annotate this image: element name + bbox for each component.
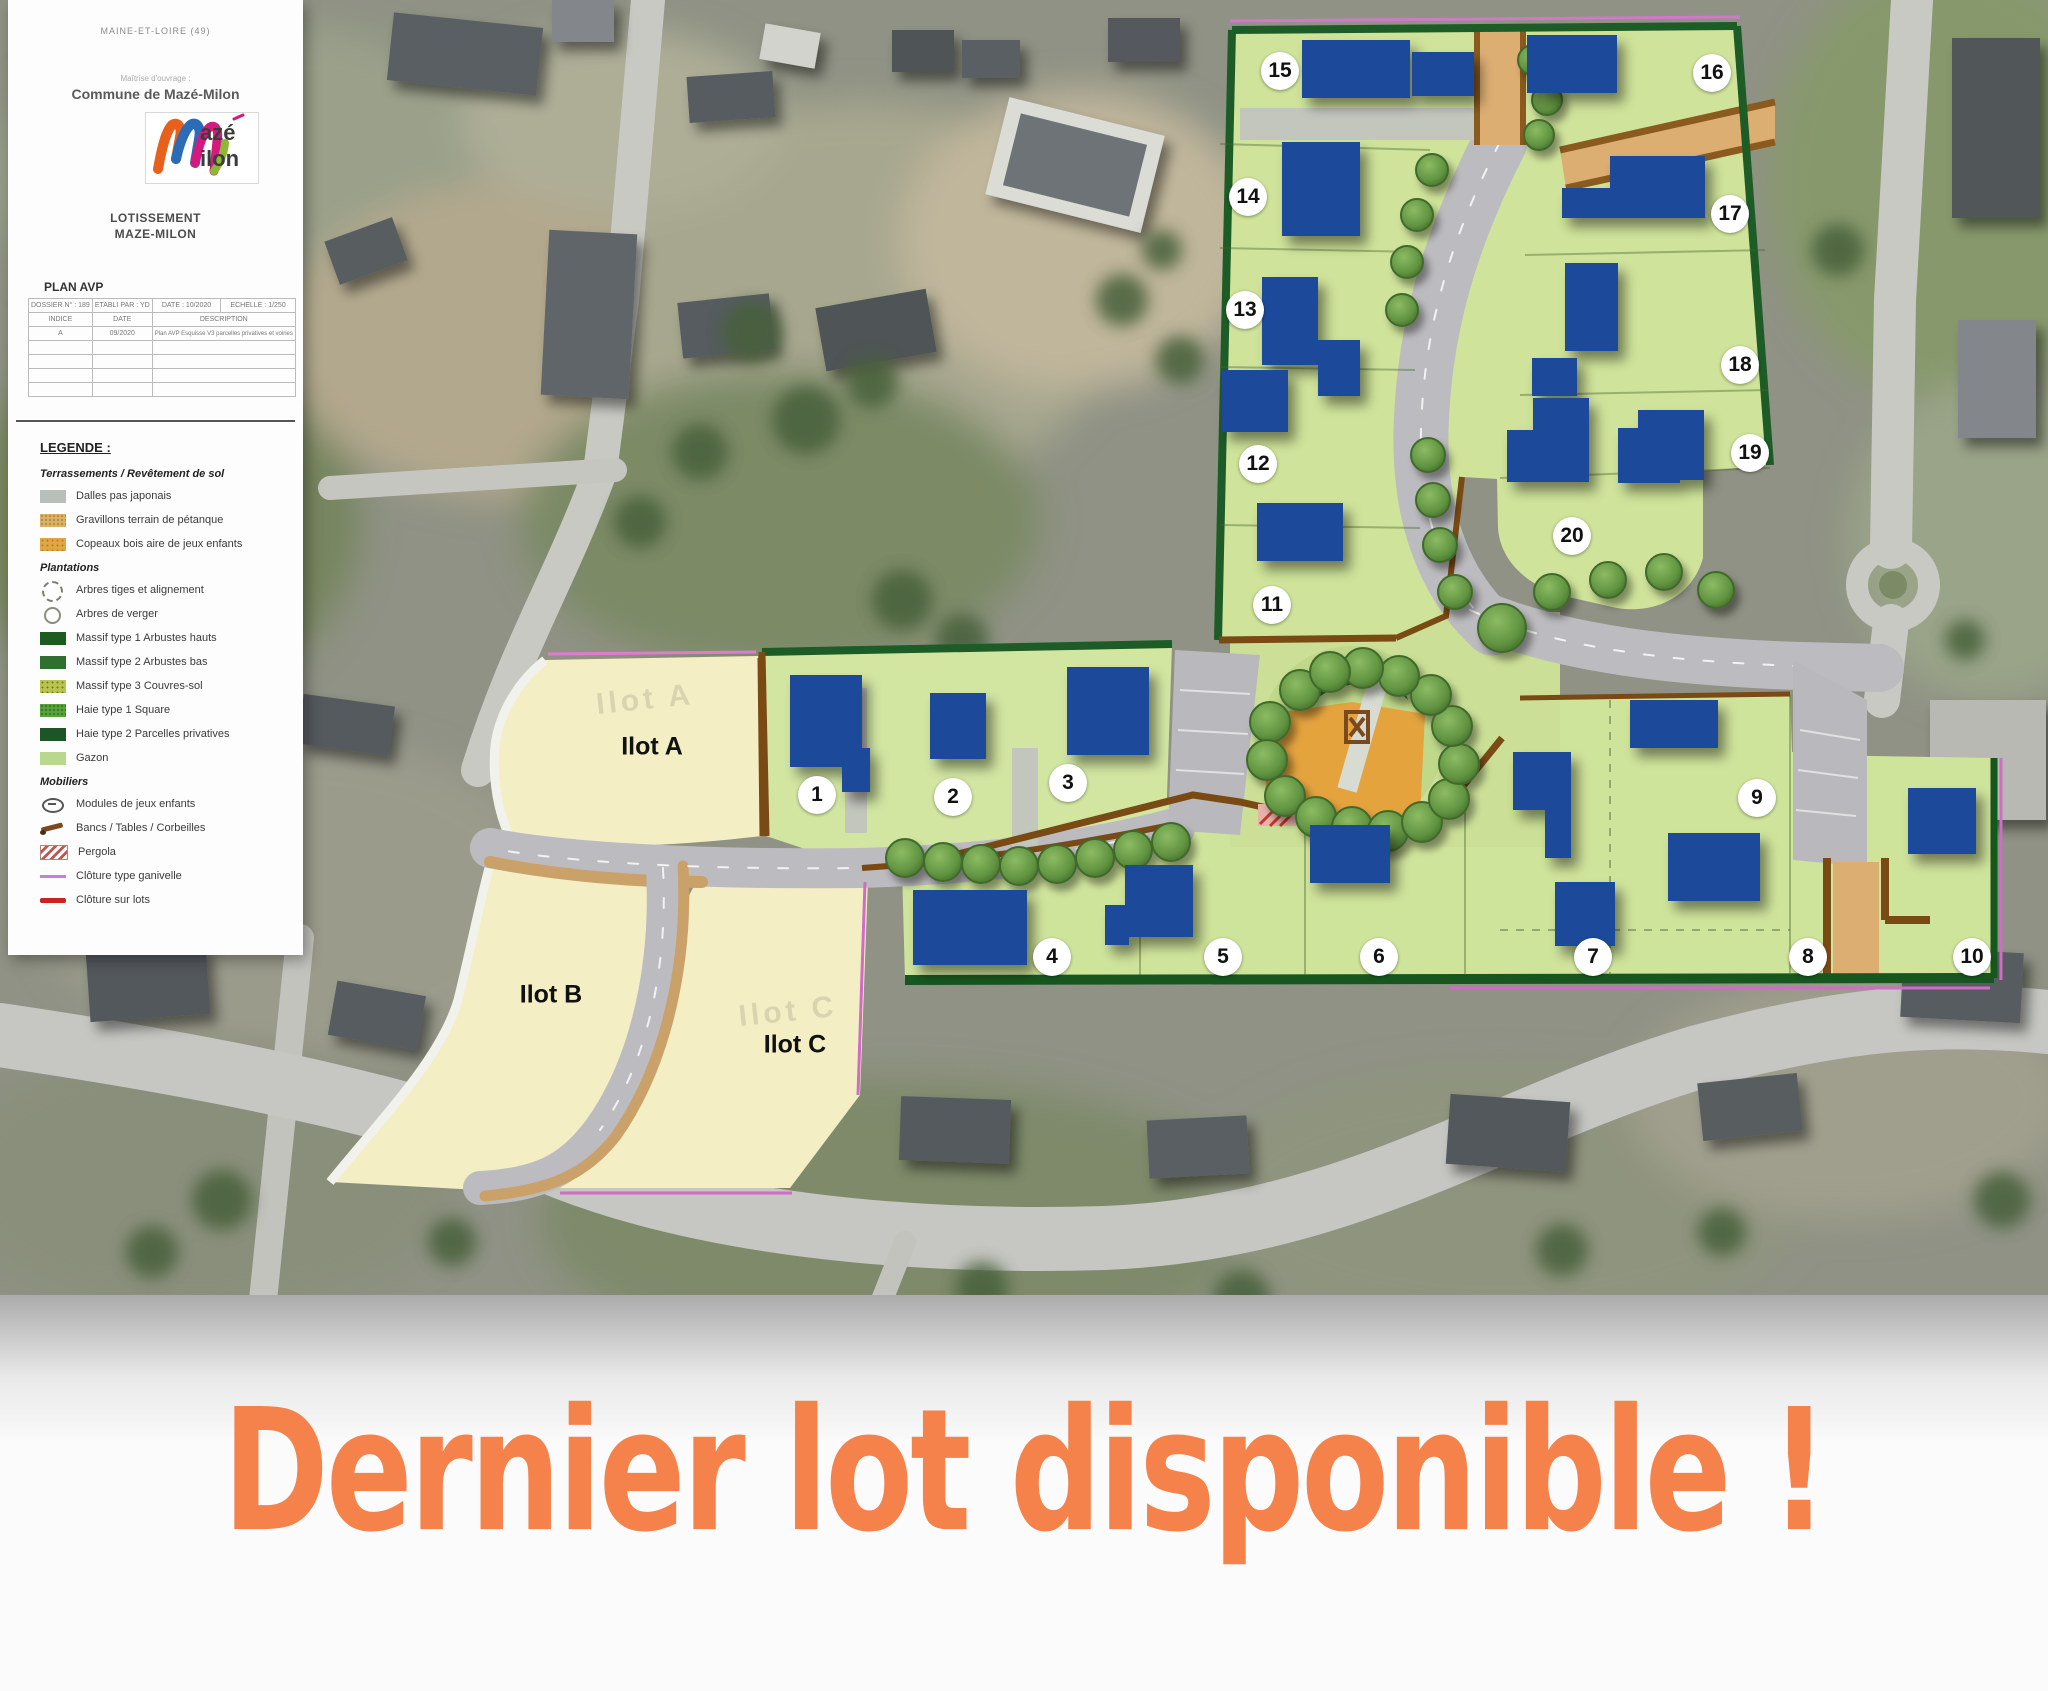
ilot-label-a: Ilot A xyxy=(621,733,683,762)
legend-item: Clôture type ganivelle xyxy=(40,864,290,888)
lot-marker-9: 9 xyxy=(1738,779,1776,817)
massif3-swatch-icon xyxy=(40,680,66,693)
client-caption: Maîtrise d'ouvrage : xyxy=(8,74,303,83)
legend-item-label: Arbres tiges et alignement xyxy=(76,584,204,596)
plan-type-label: PLAN AVP xyxy=(44,280,103,294)
legend-item-label: Modules de jeux enfants xyxy=(76,798,195,810)
ganivelle-swatch-icon xyxy=(40,870,66,883)
lot-marker-20: 20 xyxy=(1553,517,1591,555)
legend-item-label: Bancs / Tables / Corbeilles xyxy=(76,822,205,834)
lot-marker-3: 3 xyxy=(1049,764,1087,802)
ilot-label-b: Ilot B xyxy=(520,981,583,1010)
lot-marker-4: 4 xyxy=(1033,938,1071,976)
legend-item-label: Arbres de verger xyxy=(76,608,158,620)
legend-item: Bancs / Tables / Corbeilles xyxy=(40,816,290,840)
legend: Terrassements / Revêtement de solDalles … xyxy=(40,462,290,912)
ilot-label-c: Ilot C xyxy=(764,1031,827,1060)
table-row xyxy=(29,341,296,355)
department-label: MAINE-ET-LOIRE (49) xyxy=(8,26,303,36)
legend-item-label: Dalles pas japonais xyxy=(76,490,171,502)
lot-marker-11: 11 xyxy=(1253,586,1291,624)
project-title: LOTISSEMENT MAZE-MILON xyxy=(8,210,303,242)
legend-item-label: Massif type 1 Arbustes hauts xyxy=(76,632,217,644)
legend-item-label: Haie type 2 Parcelles privatives xyxy=(76,728,229,740)
legend-item: Gravillons terrain de pétanque xyxy=(40,508,290,532)
lot-marker-12: 12 xyxy=(1239,445,1277,483)
haie1-swatch-icon xyxy=(40,704,66,717)
table-header-cell: DATE : 10/2020 xyxy=(152,299,221,313)
flyer: Ilot AIlot CIlot AIlot BIlot C1234567891… xyxy=(0,0,2048,1691)
legend-group-heading: Plantations xyxy=(40,562,290,574)
table-header-cell: ETABLI PAR : YD xyxy=(92,299,152,313)
table-subheader-cell: DATE xyxy=(92,313,152,327)
table-cell-description xyxy=(152,383,295,397)
lot-marker-19: 19 xyxy=(1731,434,1769,472)
legend-item: Copeaux bois aire de jeux enfants xyxy=(40,532,290,556)
logo-wordmark: azéilon xyxy=(200,121,239,171)
table-row xyxy=(29,383,296,397)
lot-marker-13: 13 xyxy=(1226,291,1264,329)
legend-item: Massif type 2 Arbustes bas xyxy=(40,650,290,674)
title-block-table: DOSSIER N° : 189ETABLI PAR : YDDATE : 10… xyxy=(28,298,296,397)
copeaux-swatch-icon xyxy=(40,538,66,551)
table-cell-date xyxy=(92,383,152,397)
legend-item: Massif type 1 Arbustes hauts xyxy=(40,626,290,650)
table-cell-date: 09/2020 xyxy=(92,327,152,341)
maze-milon-logo: azéilon xyxy=(145,112,259,184)
ilot-watermark: Ilot C xyxy=(737,990,839,1034)
dalles-swatch-icon xyxy=(40,490,66,503)
legend-item: Haie type 1 Square xyxy=(40,698,290,722)
legend-item-label: Copeaux bois aire de jeux enfants xyxy=(76,538,242,550)
legend-title: LEGENDE : xyxy=(40,440,111,455)
lot-marker-7: 7 xyxy=(1574,938,1612,976)
lot-marker-10: 10 xyxy=(1953,938,1991,976)
legend-item-label: Clôture sur lots xyxy=(76,894,150,906)
table-row xyxy=(29,369,296,383)
lot-marker-16: 16 xyxy=(1693,54,1731,92)
banner: Dernier lot disponible ! xyxy=(0,1402,2048,1551)
table-row xyxy=(29,355,296,369)
legend-item: Clôture sur lots xyxy=(40,888,290,912)
title-block-panel: MAINE-ET-LOIRE (49) Maîtrise d'ouvrage :… xyxy=(8,0,303,955)
lot-marker-5: 5 xyxy=(1204,938,1242,976)
banc-swatch-icon xyxy=(40,822,66,835)
banner-text: Dernier lot disponible ! xyxy=(223,1373,1826,1570)
legend-group-heading: Mobiliers xyxy=(40,776,290,788)
ilot-watermark: Ilot A xyxy=(595,678,696,722)
legend-item: Massif type 3 Couvres-sol xyxy=(40,674,290,698)
legend-item: Arbres de verger xyxy=(40,602,290,626)
table-header-cell: ECHELLE : 1/250 xyxy=(221,299,296,313)
table-header-cell: DOSSIER N° : 189 xyxy=(29,299,93,313)
lot-marker-2: 2 xyxy=(934,778,972,816)
legend-group-heading: Terrassements / Revêtement de sol xyxy=(40,468,290,480)
pergola-swatch-icon xyxy=(40,845,68,860)
legend-item: Pergola xyxy=(40,840,290,864)
table-cell-description xyxy=(152,341,295,355)
cloture-swatch-icon xyxy=(40,894,66,907)
table-cell-description: Plan AVP Esquisse V3 parcelles privative… xyxy=(152,327,295,341)
gravillons-swatch-icon xyxy=(40,514,66,527)
table-cell-indice xyxy=(29,383,93,397)
table-row: A09/2020Plan AVP Esquisse V3 parcelles p… xyxy=(29,327,296,341)
legend-item: Gazon xyxy=(40,746,290,770)
legend-item-label: Massif type 3 Couvres-sol xyxy=(76,680,203,692)
table-cell-date xyxy=(92,355,152,369)
legend-item-label: Clôture type ganivelle xyxy=(76,870,182,882)
legend-item-label: Pergola xyxy=(78,846,116,858)
legend-item: Modules de jeux enfants xyxy=(40,792,290,816)
table-cell-date xyxy=(92,369,152,383)
table-cell-description xyxy=(152,369,295,383)
legend-item-label: Haie type 1 Square xyxy=(76,704,170,716)
gazon-swatch-icon xyxy=(40,752,66,765)
arbre-verger-swatch-icon xyxy=(40,608,66,621)
table-subheader-cell: INDICE xyxy=(29,313,93,327)
table-subheader-row: INDICEDATEDESCRIPTION xyxy=(29,313,296,327)
legend-item: Haie type 2 Parcelles privatives xyxy=(40,722,290,746)
legend-item-label: Gravillons terrain de pétanque xyxy=(76,514,223,526)
massif2-swatch-icon xyxy=(40,656,66,669)
lot-marker-17: 17 xyxy=(1711,195,1749,233)
legend-item: Arbres tiges et alignement xyxy=(40,578,290,602)
client-name: Commune de Mazé-Milon xyxy=(8,86,303,102)
haie2-swatch-icon xyxy=(40,728,66,741)
table-cell-description xyxy=(152,355,295,369)
table-cell-indice xyxy=(29,341,93,355)
table-cell-date xyxy=(92,341,152,355)
table-cell-indice: A xyxy=(29,327,93,341)
legend-item-label: Gazon xyxy=(76,752,108,764)
lot-marker-18: 18 xyxy=(1721,346,1759,384)
plan-markers: Ilot AIlot CIlot AIlot BIlot C1234567891… xyxy=(0,0,2048,1310)
lot-marker-15: 15 xyxy=(1261,52,1299,90)
table-header-row: DOSSIER N° : 189ETABLI PAR : YDDATE : 10… xyxy=(29,299,296,313)
table-cell-indice xyxy=(29,369,93,383)
lot-marker-8: 8 xyxy=(1789,938,1827,976)
jeux-swatch-icon xyxy=(40,798,66,811)
table-subheader-cell: DESCRIPTION xyxy=(152,313,295,327)
legend-item: Dalles pas japonais xyxy=(40,484,290,508)
divider xyxy=(16,420,295,422)
table-cell-indice xyxy=(29,355,93,369)
legend-item-label: Massif type 2 Arbustes bas xyxy=(76,656,207,668)
massif1-swatch-icon xyxy=(40,632,66,645)
lot-marker-14: 14 xyxy=(1229,178,1267,216)
arbre-tige-swatch-icon xyxy=(40,584,66,597)
lot-marker-1: 1 xyxy=(798,776,836,814)
lot-marker-6: 6 xyxy=(1360,938,1398,976)
